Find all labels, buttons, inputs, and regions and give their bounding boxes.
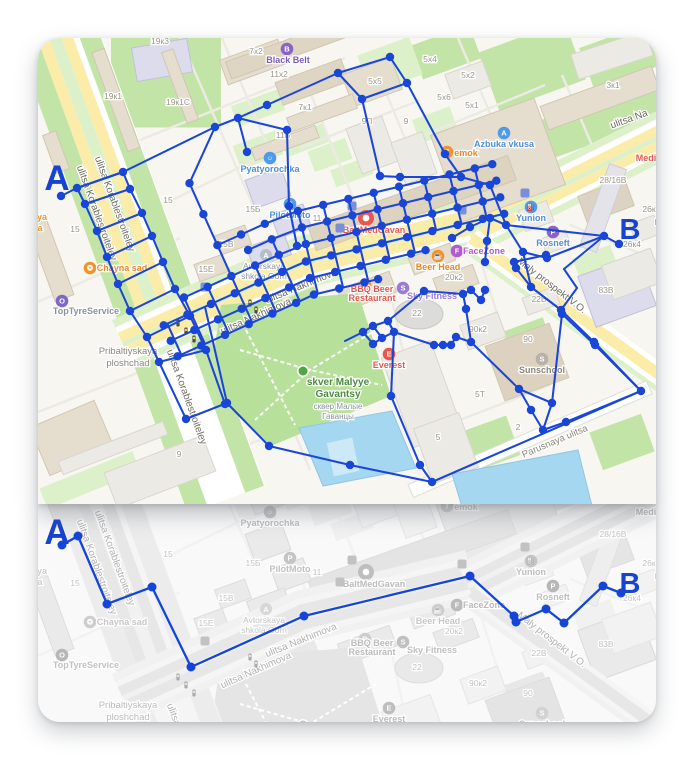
svg-text:B: B — [620, 214, 641, 246]
svg-text:A: A — [44, 159, 69, 198]
svg-text:B: B — [620, 568, 641, 600]
svg-text:A: A — [44, 513, 69, 552]
